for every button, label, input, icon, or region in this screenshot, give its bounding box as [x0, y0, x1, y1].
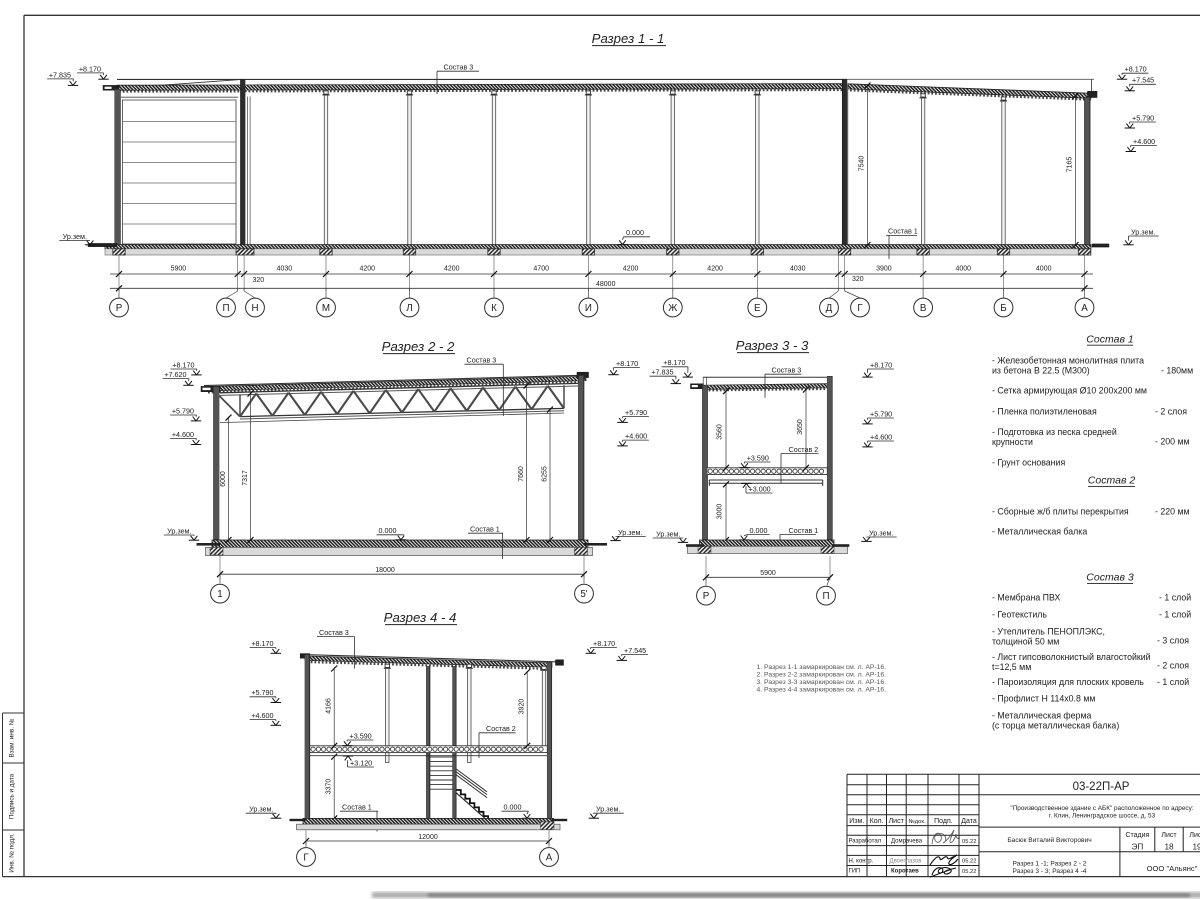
svg-text:1: 1	[217, 589, 222, 600]
svg-text:Ж: Ж	[668, 303, 677, 314]
svg-text:3900: 3900	[876, 266, 892, 273]
svg-text:Ур.зем.: Ур.зем.	[63, 232, 87, 241]
svg-text:Н. контр.: Н. контр.	[849, 858, 874, 864]
svg-text:Басюк Виталий Викторович: Басюк Виталий Викторович	[1007, 836, 1091, 844]
svg-text:18000: 18000	[375, 567, 395, 574]
svg-text:+3.120: +3.120	[350, 758, 372, 767]
svg-text:7165: 7165	[1067, 157, 1074, 173]
svg-text:ГИП: ГИП	[849, 869, 861, 875]
svg-text:Состав 3: Состав 3	[1086, 572, 1134, 584]
svg-text:- 1 слой: - 1 слой	[1157, 677, 1189, 687]
svg-text:М: М	[322, 303, 330, 314]
svg-text:- Металлическая балка: - Металлическая балка	[992, 526, 1087, 536]
svg-text:4. Разрез 4-4 замаркирован см.: 4. Разрез 4-4 замаркирован см. л. АР-16.	[757, 686, 887, 693]
svg-text:г. Клин, Ленинградское шоссе,: г. Клин, Ленинградское шоссе, д. 53	[1049, 812, 1156, 819]
svg-text:+8.170: +8.170	[870, 360, 892, 369]
svg-text:Взам. инв. №: Взам. инв. №	[9, 718, 16, 757]
svg-text:И: И	[585, 303, 592, 314]
svg-text:Разрез 3 - 3; Разрез 4 -4: Разрез 3 - 3; Разрез 4 -4	[1013, 868, 1087, 875]
svg-text:- Лист гипсоволокнистый влагос: - Лист гипсоволокнистый влагостойкий	[992, 652, 1151, 662]
svg-text:Разрез 4 - 4: Разрез 4 - 4	[384, 610, 457, 625]
svg-text:Кол.: Кол.	[870, 818, 884, 825]
svg-text:320: 320	[253, 277, 265, 284]
svg-text:Лист: Лист	[1161, 832, 1177, 839]
svg-text:Подпись и дата: Подпись и дата	[9, 773, 16, 819]
svg-text:ООО "Альянс": ООО "Альянс"	[1147, 864, 1198, 873]
svg-text:Изм.: Изм.	[849, 818, 864, 825]
svg-text:- Мембрана ПВХ: - Мембрана ПВХ	[992, 593, 1060, 603]
svg-text:+8.170: +8.170	[593, 639, 615, 648]
svg-text:0.000: 0.000	[750, 526, 768, 535]
svg-text:Стадия: Стадия	[1125, 832, 1149, 839]
svg-text:4030: 4030	[277, 266, 293, 273]
svg-text:Б: Б	[1000, 303, 1006, 314]
svg-text:Состав 1: Состав 1	[470, 524, 500, 533]
svg-text:+4.600: +4.600	[870, 432, 892, 441]
svg-text:- Профлист Н 114x0.8 мм: - Профлист Н 114x0.8 мм	[992, 694, 1095, 704]
svg-text:3000: 3000	[717, 504, 724, 520]
svg-text:05.22: 05.22	[962, 859, 977, 865]
svg-text:- 1 слой: - 1 слой	[1159, 609, 1191, 619]
svg-text:4700: 4700	[533, 266, 549, 273]
svg-text:05.22: 05.22	[962, 839, 977, 845]
svg-text:Ур.зем.: Ур.зем.	[596, 805, 620, 814]
svg-text:+8.170: +8.170	[616, 359, 638, 368]
svg-text:Г: Г	[303, 853, 309, 864]
svg-text:- 2 слоя: - 2 слоя	[1157, 661, 1189, 671]
svg-text:1. Разрез 1-1 замаркирован см.: 1. Разрез 1-1 замаркирован см. л. АР-16.	[757, 664, 887, 671]
svg-text:5900: 5900	[171, 266, 187, 273]
svg-text:+8.170: +8.170	[663, 358, 685, 367]
svg-text:А: А	[1081, 303, 1088, 314]
svg-text:из бетона В 22.5 (М300): из бетона В 22.5 (М300)	[992, 365, 1090, 375]
svg-text:+5.790: +5.790	[625, 408, 647, 417]
svg-text:- 220 мм: - 220 мм	[1155, 507, 1190, 517]
svg-text:- 1 слой: - 1 слой	[1159, 593, 1191, 603]
svg-text:+4.600: +4.600	[625, 432, 647, 441]
svg-text:Состав 2: Состав 2	[1088, 475, 1136, 487]
svg-text:+4.600: +4.600	[1133, 137, 1155, 146]
svg-text:Ур.зем.: Ур.зем.	[618, 528, 642, 537]
svg-text:4200: 4200	[360, 266, 376, 273]
svg-text:- 200 мм: - 200 мм	[1155, 437, 1190, 447]
svg-text:Разрез 1 - 1: Разрез 1 - 1	[592, 31, 665, 46]
svg-text:Лист: Лист	[1189, 832, 1200, 839]
svg-text:4200: 4200	[444, 266, 460, 273]
svg-text:5900: 5900	[760, 570, 776, 577]
svg-text:- Грунт основания: - Грунт основания	[992, 458, 1065, 468]
svg-text:- 3 слоя: - 3 слоя	[1157, 636, 1189, 646]
svg-text:Разработал: Разработал	[849, 838, 882, 844]
svg-text:+8.170: +8.170	[251, 639, 273, 648]
svg-text:К: К	[491, 303, 497, 314]
svg-text:+8.170: +8.170	[172, 360, 194, 369]
svg-text:- Утеплитель ПЕНОПЛЭКС,: - Утеплитель ПЕНОПЛЭКС,	[992, 627, 1105, 637]
svg-text:0.000: 0.000	[626, 228, 644, 237]
svg-text:3370: 3370	[326, 779, 333, 795]
svg-text:Ур.зем.: Ур.зем.	[656, 529, 680, 538]
svg-text:"Производственное здание с АБК: "Производственное здание с АБК" располож…	[1010, 805, 1193, 812]
svg-text:Ур.зем.: Ур.зем.	[869, 528, 893, 537]
svg-text:+4.600: +4.600	[172, 430, 194, 439]
svg-text:t=12,5 мм: t=12,5 мм	[992, 662, 1031, 672]
svg-text:2. Разрез 2-2 замаркирован см.: 2. Разрез 2-2 замаркирован см. л. АР-16.	[757, 671, 887, 678]
svg-text:Г: Г	[857, 303, 863, 314]
svg-text:320: 320	[852, 276, 864, 283]
svg-text:Разрез 3 - 3: Разрез 3 - 3	[736, 338, 809, 353]
svg-text:+3.000: +3.000	[749, 484, 771, 493]
svg-text:+5.790: +5.790	[251, 688, 273, 697]
svg-text:Разрез 2 - 2: Разрез 2 - 2	[382, 339, 455, 354]
svg-text:Е: Е	[754, 303, 761, 314]
svg-text:05.22: 05.22	[962, 869, 977, 875]
svg-text:+4.600: +4.600	[251, 711, 273, 720]
svg-text:Состав 1: Состав 1	[789, 526, 819, 535]
svg-text:Коротаев: Коротаев	[891, 869, 919, 875]
svg-text:7540: 7540	[859, 156, 866, 172]
svg-text:- Сетка армирующая Ø10 200x200: - Сетка армирующая Ø10 200x200 мм	[992, 386, 1147, 396]
svg-text:4000: 4000	[1036, 266, 1052, 273]
svg-text:4030: 4030	[790, 266, 806, 273]
svg-text:7317: 7317	[242, 470, 249, 486]
svg-text:Д: Д	[826, 303, 833, 314]
svg-text:+3.590: +3.590	[747, 453, 769, 462]
svg-text:толщиной 50 мм: толщиной 50 мм	[992, 637, 1059, 647]
svg-text:Р: Р	[703, 591, 710, 602]
svg-text:крупности: крупности	[992, 437, 1033, 447]
svg-text:12000: 12000	[418, 834, 438, 841]
svg-text:Состав 1: Состав 1	[1086, 334, 1133, 346]
svg-text:Лист: Лист	[889, 818, 905, 825]
svg-text:4000: 4000	[956, 266, 972, 273]
svg-text:Инв. № подл.: Инв. № подл.	[9, 833, 16, 872]
svg-text:3. Разрез 3-3 замаркирован см.: 3. Разрез 3-3 замаркирован см. л. АР-16.	[757, 679, 887, 686]
svg-text:Р: Р	[116, 303, 123, 314]
svg-text:+5.790: +5.790	[172, 406, 194, 415]
svg-text:0.000: 0.000	[379, 526, 397, 535]
svg-text:0.000: 0.000	[504, 802, 522, 811]
svg-text:Подп.: Подп.	[934, 818, 953, 825]
svg-text:5': 5'	[580, 589, 587, 600]
svg-text:- Металлическая ферма: - Металлическая ферма	[992, 711, 1091, 721]
svg-text:№док.: №док.	[909, 819, 926, 825]
svg-text:03-22П-АР: 03-22П-АР	[1073, 781, 1130, 793]
svg-text:- Сборные ж/б плиты перекрытия: - Сборные ж/б плиты перекрытия	[992, 507, 1129, 517]
svg-text:Состав 1: Состав 1	[888, 226, 918, 235]
svg-text:Ур.зем.: Ур.зем.	[249, 805, 273, 814]
svg-text:+7.835: +7.835	[49, 70, 71, 79]
svg-text:+7.545: +7.545	[624, 646, 646, 655]
svg-text:П: П	[222, 303, 229, 314]
svg-text:- Пленка полиэтиленовая: - Пленка полиэтиленовая	[992, 407, 1097, 417]
svg-text:Состав 3: Состав 3	[444, 62, 474, 71]
svg-text:Дата: Дата	[961, 818, 977, 825]
svg-text:Ур.зем.: Ур.зем.	[167, 526, 191, 535]
svg-text:Состав 3: Состав 3	[467, 355, 497, 364]
svg-text:Домрачева: Домрачева	[891, 838, 923, 844]
svg-text:Состав 2: Состав 2	[486, 724, 516, 733]
svg-text:+7.835: +7.835	[651, 368, 673, 377]
svg-text:Разрез 1 -1; Разрез 2 - 2: Разрез 1 -1; Разрез 2 - 2	[1013, 861, 1087, 868]
svg-text:4166: 4166	[326, 698, 333, 714]
svg-text:Н: Н	[251, 303, 258, 314]
svg-text:+3.590: +3.590	[350, 731, 372, 740]
svg-text:4200: 4200	[623, 266, 639, 273]
svg-text:+7.545: +7.545	[1132, 76, 1154, 85]
svg-text:19: 19	[1192, 843, 1200, 852]
svg-text:+5.790: +5.790	[870, 409, 892, 418]
svg-text:- Пароизоляция для плоских кро: - Пароизоляция для плоских кровель	[992, 677, 1144, 687]
svg-text:Состав 3: Состав 3	[772, 366, 802, 375]
svg-text:В: В	[920, 303, 927, 314]
svg-text:+8.170: +8.170	[1125, 65, 1147, 74]
svg-text:Двоеглазов: Двоеглазов	[890, 858, 922, 864]
svg-text:Ур.зем.: Ур.зем.	[1131, 227, 1155, 236]
svg-text:- Геотекстиль: - Геотекстиль	[992, 609, 1047, 619]
svg-text:6255: 6255	[542, 466, 549, 482]
svg-text:+8.170: +8.170	[79, 64, 101, 73]
svg-text:7660: 7660	[518, 466, 525, 482]
svg-text:Л: Л	[406, 303, 412, 314]
svg-text:6000: 6000	[220, 471, 227, 487]
svg-text:А: А	[546, 853, 553, 864]
svg-text:3920: 3920	[519, 699, 526, 715]
svg-text:П: П	[822, 591, 829, 602]
svg-text:+5.790: +5.790	[1132, 113, 1154, 122]
svg-text:ЭП: ЭП	[1132, 843, 1144, 852]
svg-text:Состав 3: Состав 3	[319, 628, 349, 637]
svg-text:18: 18	[1164, 843, 1174, 852]
svg-text:Состав 1: Состав 1	[342, 802, 372, 811]
svg-text:48000: 48000	[596, 281, 616, 288]
svg-text:- 2 слоя: - 2 слоя	[1155, 407, 1187, 417]
svg-text:- Железобетонная монолитная п: - Железобетонная монолитная плита	[992, 355, 1144, 365]
svg-text:+7.620: +7.620	[164, 370, 186, 379]
svg-text:- Подготовка из песка средней: - Подготовка из песка средней	[992, 427, 1117, 437]
svg-text:- 180мм: - 180мм	[1161, 365, 1193, 375]
svg-text:Состав 2: Состав 2	[789, 445, 819, 454]
svg-text:4200: 4200	[707, 266, 723, 273]
svg-text:(с торца металлическая балка): (с торца металлическая балка)	[992, 721, 1119, 731]
svg-text:3650: 3650	[797, 419, 804, 435]
svg-text:3560: 3560	[717, 424, 724, 440]
